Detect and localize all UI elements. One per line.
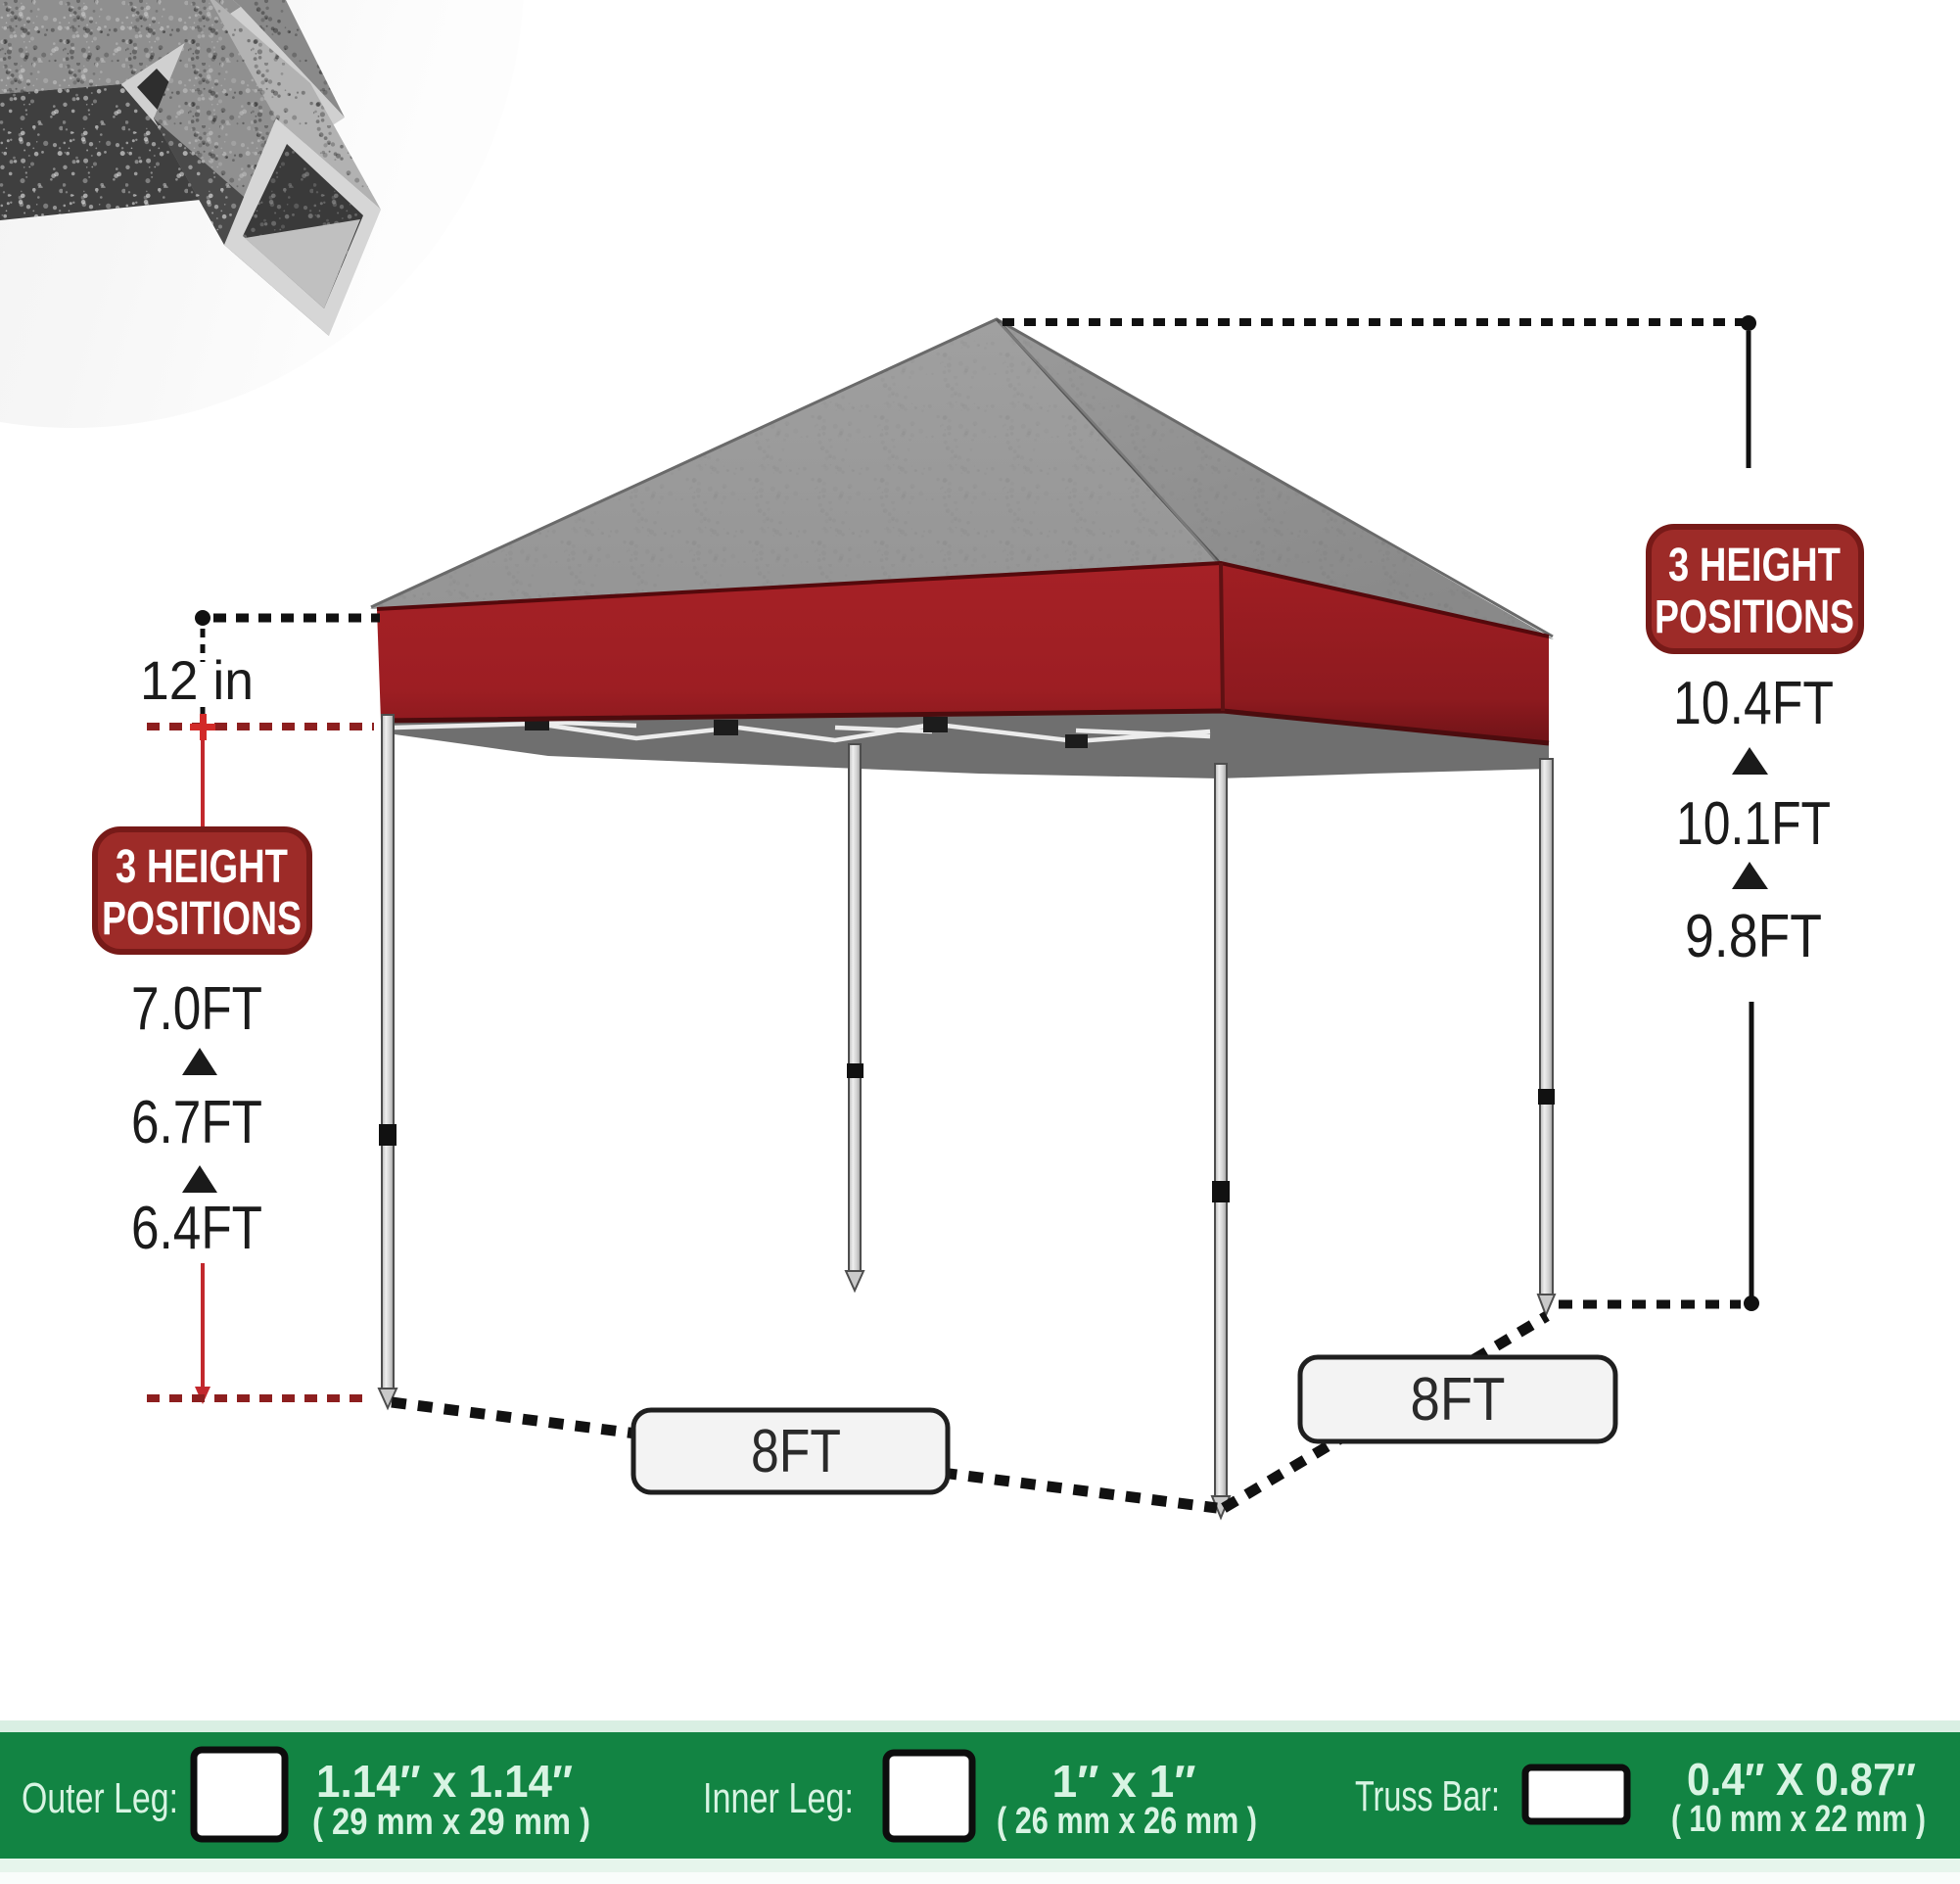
svg-text:7.0FT: 7.0FT [131, 975, 262, 1043]
svg-text:POSITIONS: POSITIONS [102, 893, 302, 945]
svg-text:Truss Bar:: Truss Bar: [1355, 1772, 1500, 1820]
svg-text:( 10 mm x 22 mm ): ( 10 mm x 22 mm ) [1671, 1799, 1926, 1840]
svg-text:0.4″ X 0.87″: 0.4″ X 0.87″ [1687, 1754, 1916, 1805]
svg-text:1″ x 1″: 1″ x 1″ [1052, 1756, 1196, 1807]
svg-text:6.4FT: 6.4FT [131, 1195, 262, 1262]
svg-text:9.8FT: 9.8FT [1685, 903, 1822, 970]
svg-text:10.1FT: 10.1FT [1676, 790, 1831, 858]
svg-text:6.7FT: 6.7FT [131, 1089, 262, 1156]
svg-text:( 26 mm x 26 mm ): ( 26 mm x 26 mm ) [997, 1801, 1257, 1842]
svg-text:3 HEIGHT: 3 HEIGHT [116, 841, 288, 893]
svg-text:12 in: 12 in [140, 649, 254, 711]
svg-text:10.4FT: 10.4FT [1673, 670, 1834, 737]
svg-text:( 29 mm x 29 mm ): ( 29 mm x 29 mm ) [312, 1802, 590, 1843]
svg-text:1.14″ x 1.14″: 1.14″ x 1.14″ [316, 1756, 573, 1807]
svg-text:POSITIONS: POSITIONS [1655, 591, 1854, 643]
svg-text:3 HEIGHT: 3 HEIGHT [1668, 540, 1841, 591]
svg-text:Outer Leg:: Outer Leg: [22, 1774, 178, 1822]
svg-text:8FT: 8FT [1411, 1366, 1506, 1434]
svg-text:8FT: 8FT [751, 1418, 841, 1485]
svg-text:Inner Leg:: Inner Leg: [703, 1774, 854, 1822]
